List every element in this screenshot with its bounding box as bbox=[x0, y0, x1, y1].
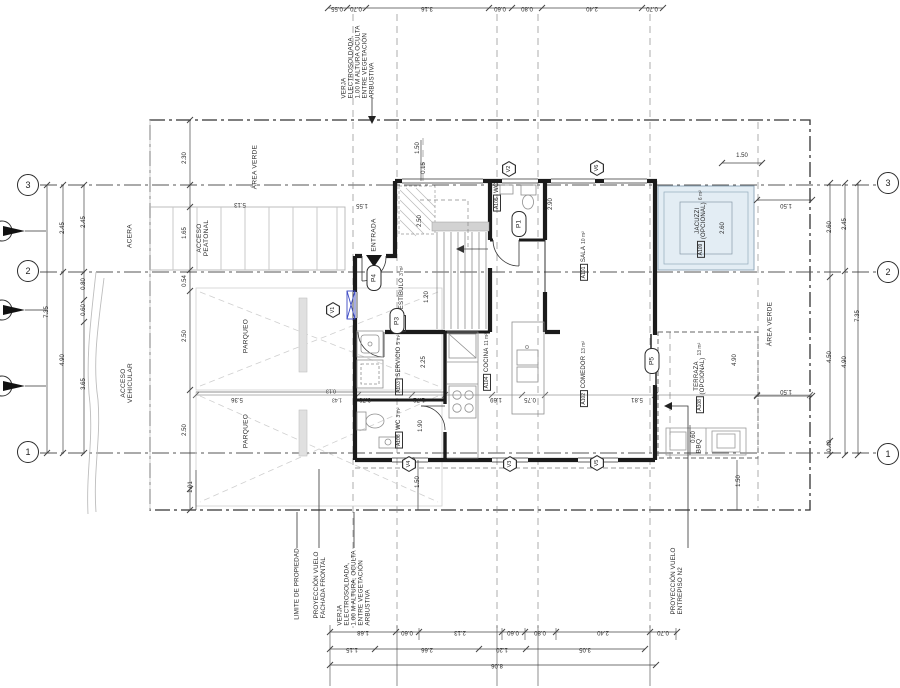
dimension-label: 0.80 bbox=[534, 629, 546, 635]
annotation-text: VERJAELECTROSOLDADA,1.00 M ALTURA OCULTA… bbox=[341, 25, 376, 98]
dimension-label: 2.60 bbox=[827, 221, 833, 233]
dimension-label: 1.90 bbox=[418, 420, 424, 432]
dimension-label: 0.60 bbox=[401, 629, 413, 635]
site-label: ÁREA VERDE bbox=[768, 302, 775, 347]
window-tag-v6: V6 bbox=[590, 160, 604, 176]
dimension-label: 0.70 bbox=[350, 5, 362, 11]
door-tag-p3: P3 bbox=[390, 308, 405, 334]
dimension-label: 0.60 bbox=[81, 304, 87, 316]
dimension-label: 0.60 bbox=[494, 5, 506, 11]
dimension-label: 3.05 bbox=[579, 646, 591, 652]
dimension-label: 5.81 bbox=[631, 396, 643, 402]
room-tag-wc: A105WC bbox=[493, 182, 501, 211]
window-tag-v1: V1 bbox=[326, 302, 340, 318]
door-tag-p1: P1 bbox=[512, 211, 527, 237]
site-label: BBQ bbox=[697, 439, 704, 454]
annotation-text: PROYECCIÓN VUELOFACHADA FRONTAL bbox=[313, 551, 327, 618]
dimension-label: 1.72 bbox=[413, 396, 425, 402]
grid-bubble: 2 bbox=[877, 261, 899, 283]
dimension-label: 2.50 bbox=[417, 215, 423, 227]
dimension-label: 0.70 bbox=[359, 396, 371, 402]
door-tag-p5: P5 bbox=[645, 348, 660, 374]
room-tag-sala: A101SALA10 m² bbox=[580, 231, 588, 281]
room-tag-comedor: A102COMEDOR13 m² bbox=[580, 341, 588, 407]
dimension-label: 0.54 bbox=[182, 275, 188, 287]
window-tag-v4: V4 bbox=[402, 456, 416, 472]
floor-plan-canvas: 3213210.550.703.160.600.802.400.701.680.… bbox=[0, 0, 900, 688]
grid-bubble: 1 bbox=[877, 443, 899, 465]
dimension-label: 1.69 bbox=[490, 396, 502, 402]
dimension-label: 0.13 bbox=[326, 387, 336, 392]
dimension-label: 1.20 bbox=[424, 291, 430, 303]
dimension-label: 0.60 bbox=[507, 629, 519, 635]
dimension-label: 1.65 bbox=[182, 227, 188, 239]
dimension-label: 1.50 bbox=[415, 476, 421, 488]
site-label: PARQUEO bbox=[244, 414, 251, 448]
room-tag-terraza: A108TERRAZA(OPCIONAL)13 m² bbox=[694, 343, 706, 413]
dimension-label: 1.50 bbox=[780, 388, 792, 394]
dimension-label: 1.50 bbox=[736, 475, 742, 487]
dimension-label: 2.45 bbox=[81, 216, 87, 228]
dimension-label: 4.90 bbox=[60, 354, 66, 366]
grid-bubble: 1 bbox=[17, 441, 39, 463]
room-tag-wc: A106WC3 m² bbox=[395, 407, 403, 448]
dimension-label: 2.25 bbox=[421, 356, 427, 368]
annotation-text: LIMITE DE PROPIEDAD bbox=[294, 548, 301, 620]
dimension-label: 1.68 bbox=[357, 629, 369, 635]
dimension-label: 2.13 bbox=[454, 629, 466, 635]
dimension-label: 1.55 bbox=[356, 202, 368, 208]
window-tag-v2: V2 bbox=[502, 161, 516, 177]
dimension-label: 2.40 bbox=[586, 5, 598, 11]
room-tag-cocina: A104COCINA11 m² bbox=[483, 333, 491, 391]
dimension-label: 2.90 bbox=[548, 198, 554, 210]
dimension-label: 0.70 bbox=[657, 629, 669, 635]
dimension-label: 1.01 bbox=[188, 481, 194, 493]
site-label: ENTRADA bbox=[372, 218, 379, 251]
dimension-label: 5.13 bbox=[234, 201, 246, 207]
window-tag-v3: V3 bbox=[503, 456, 517, 472]
dimension-label: 0.55 bbox=[331, 5, 343, 11]
annotation-text: PROYECCIÓN VUELOENTREPISO N2 bbox=[670, 547, 684, 614]
dimension-label: 0.70 bbox=[646, 5, 658, 11]
dimension-label: 4.90 bbox=[732, 354, 738, 366]
dimension-label: 2.40 bbox=[597, 629, 609, 635]
dimension-label: 3.16 bbox=[421, 5, 433, 11]
dimension-label: 0.75 bbox=[524, 396, 536, 402]
dimension-label: 0.80 bbox=[521, 5, 533, 11]
site-label: PARQUEO bbox=[244, 319, 251, 353]
dimension-label: 0.80 bbox=[81, 278, 87, 290]
grid-bubble: 3 bbox=[877, 172, 899, 194]
dimension-label: 2.66 bbox=[421, 646, 433, 652]
dimension-label: 1.20 bbox=[496, 646, 508, 652]
dimension-label: 1.50 bbox=[415, 142, 421, 154]
dimension-label: 4.90 bbox=[842, 356, 848, 368]
room-tag-jacuzzi: A109JACUZZI(OPCIONAL)6 m² bbox=[695, 190, 707, 258]
dimension-label: 4.50 bbox=[827, 351, 833, 363]
dimension-label: 1.15 bbox=[346, 646, 358, 652]
dimension-label: 2.45 bbox=[842, 218, 848, 230]
room-tag-servicio: A103SERVICIO5 m² bbox=[395, 335, 403, 396]
dimension-label: 2.30 bbox=[182, 152, 188, 164]
dimension-label: 8.06 bbox=[491, 662, 503, 668]
door-tag-p4: P4 bbox=[367, 265, 382, 291]
site-label: ÁREA VERDE bbox=[253, 145, 260, 190]
dimension-label: 2.45 bbox=[60, 222, 66, 234]
dimension-label: 5.36 bbox=[231, 396, 243, 402]
dimension-label: 0.40 bbox=[827, 440, 833, 452]
site-label: ACCESOVEHICULAR bbox=[121, 363, 135, 403]
grid-bubble: 3 bbox=[17, 174, 39, 196]
dimension-label: 2.50 bbox=[182, 424, 188, 436]
annotation-text: VERJAELECTROSOLDADA,1.00 M ALTURA, OCULT… bbox=[337, 550, 372, 625]
dimension-label: 2.50 bbox=[182, 330, 188, 342]
dimension-label: 3.65 bbox=[81, 378, 87, 390]
dimension-label: 1.43 bbox=[332, 396, 342, 401]
grid-bubble: 2 bbox=[17, 260, 39, 282]
dimension-label: 1.50 bbox=[780, 202, 792, 208]
label-overlay: 3213210.550.703.160.600.802.400.701.680.… bbox=[0, 0, 900, 688]
site-label: ACCESOPEATONAL bbox=[197, 220, 211, 256]
dimension-label: 7.35 bbox=[855, 310, 861, 322]
dimension-label: 7.35 bbox=[44, 306, 50, 318]
dimension-label: 2.60 bbox=[720, 222, 726, 234]
dimension-label: 1.50 bbox=[736, 153, 748, 159]
window-tag-v5: V5 bbox=[590, 455, 604, 471]
site-label: ACERA bbox=[128, 224, 135, 248]
dimension-label: 0.15 bbox=[421, 162, 427, 174]
